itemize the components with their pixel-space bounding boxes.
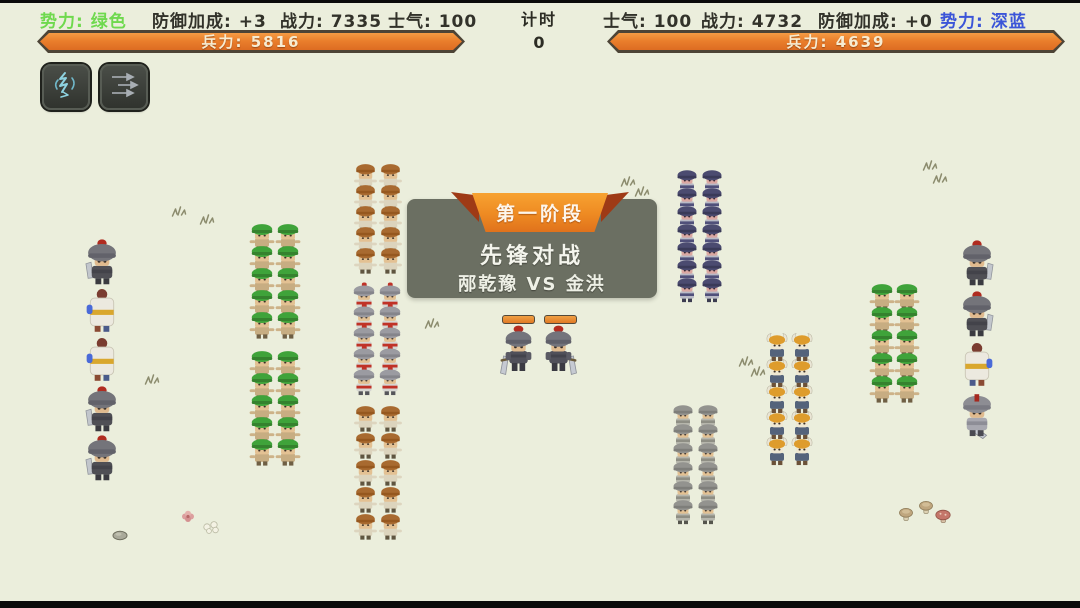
unit-brown-hair: [352, 404, 379, 433]
unit-silver-guard: [695, 497, 721, 525]
flower-pink: [180, 509, 196, 528]
unit-green-hood: [274, 437, 302, 467]
arrow-volley-icon: [107, 68, 141, 106]
timer-label: 计时: [500, 6, 578, 30]
duelist-left: [500, 324, 537, 380]
left-faction-label: 势力: 绿色: [40, 7, 127, 32]
duelist-right: [540, 324, 577, 380]
mushroom-tan: [918, 499, 934, 519]
right-troop-bar: 兵力: 4639: [607, 30, 1065, 53]
unit-gray-knight: [83, 385, 121, 432]
skill-button-cavalry[interactable]: [42, 64, 90, 110]
unit-great-sword: [958, 392, 996, 439]
unit-brown-hair: [352, 246, 379, 275]
battlefield: [0, 0, 1080, 608]
right-troop-count: 兵力: 4639: [787, 31, 886, 52]
unit-brown-hair: [352, 512, 379, 541]
grass: [931, 170, 949, 189]
right-faction-label: 势力: 深蓝: [940, 7, 1027, 32]
unit-green-hood: [893, 374, 921, 404]
battle-timer: 计时 0: [500, 6, 578, 52]
banner-title: 先锋对战: [407, 238, 657, 270]
unit-brown-hair: [352, 458, 379, 487]
grass: [143, 371, 161, 390]
right-combat-power: 战力: 4732: [701, 7, 803, 32]
mushroom-tan: [898, 506, 914, 526]
left-troop-count: 兵力: 5816: [202, 31, 301, 52]
unit-brown-hair: [377, 404, 404, 433]
duelist-hp-bar-right: [544, 315, 577, 324]
flower-white: [202, 519, 220, 538]
unit-silver-red-plume: [350, 366, 378, 396]
unit-dark-blue-guard: [699, 275, 725, 303]
phase-ribbon: 第一阶段: [472, 193, 608, 232]
left-troop-bar: 兵力: 5816: [37, 30, 465, 53]
unit-brown-hair: [377, 431, 404, 460]
battle-game-screen: 势力: 绿色 防御加成: +3 战力: 7335 士气: 100 计时 0 士气…: [0, 0, 1080, 608]
unit-brown-hair: [377, 458, 404, 487]
unit-dark-blue-guard: [674, 275, 700, 303]
unit-gray-knight: [83, 238, 121, 285]
screen-top-letterbox: [0, 0, 1080, 3]
unit-white-robe: [83, 287, 121, 334]
skill-button-arrow-volley[interactable]: [100, 64, 148, 110]
grass: [170, 203, 188, 222]
rock: [112, 526, 128, 545]
left-morale: 士气: 100: [388, 7, 477, 32]
unit-white-robe: [83, 336, 121, 383]
duelist-hp-bar-left: [502, 315, 535, 324]
right-morale: 士气: 100: [603, 7, 692, 32]
screen-bottom-letterbox: [0, 601, 1080, 608]
timer-value: 0: [500, 33, 578, 52]
unit-brown-hair: [377, 246, 404, 275]
mushroom-red: [934, 508, 952, 528]
unit-horned-viking: [788, 436, 816, 466]
right-defense-bonus: 防御加成: +0: [818, 7, 933, 32]
grass: [423, 315, 441, 334]
unit-white-robe: [958, 341, 996, 388]
unit-brown-hair: [352, 431, 379, 460]
unit-silver-guard: [670, 497, 696, 525]
unit-brown-hair: [352, 485, 379, 514]
unit-horned-viking: [763, 436, 791, 466]
left-defense-bonus: 防御加成: +3: [152, 7, 267, 32]
unit-green-hood: [274, 310, 302, 340]
unit-green-hood: [868, 374, 896, 404]
unit-green-hood: [248, 310, 276, 340]
left-combat-power: 战力: 7335: [280, 7, 382, 32]
unit-gray-knight: [958, 290, 996, 337]
cavalry-lightning-icon: [49, 68, 83, 106]
banner-matchup: 邴乾豫 VS 金洪: [407, 270, 657, 296]
grass: [198, 211, 216, 230]
phase-label: 第一阶段: [496, 199, 584, 226]
unit-brown-hair: [377, 512, 404, 541]
unit-gray-knight: [83, 434, 121, 481]
unit-gray-knight: [958, 239, 996, 286]
unit-silver-red-plume: [376, 366, 404, 396]
unit-green-hood: [248, 437, 276, 467]
unit-brown-hair: [377, 485, 404, 514]
